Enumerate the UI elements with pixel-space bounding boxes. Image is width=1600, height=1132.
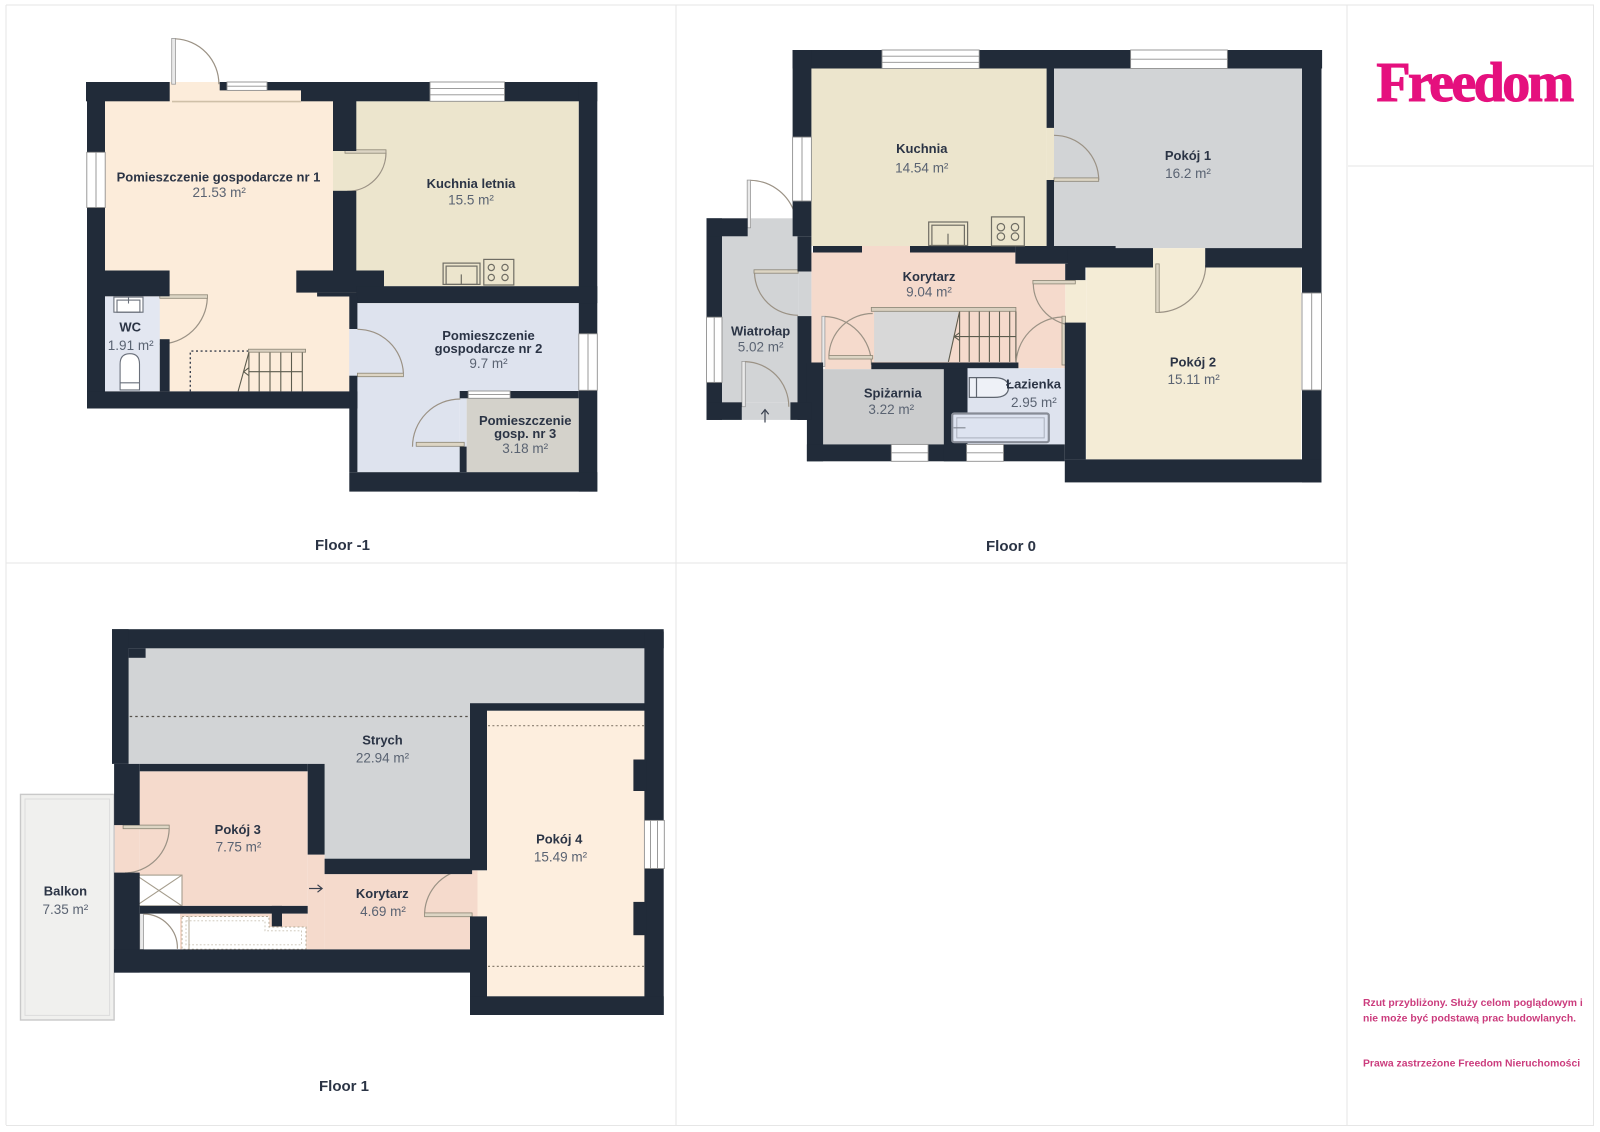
svg-text:Spiżarnia: Spiżarnia [864,386,923,401]
svg-text:3.22 m²: 3.22 m² [868,402,914,417]
svg-text:16.2 m²: 16.2 m² [1165,166,1211,181]
svg-text:Floor 0: Floor 0 [986,538,1036,555]
svg-text:15.5 m²: 15.5 m² [448,192,494,207]
svg-text:Floor -1: Floor -1 [315,537,370,554]
svg-text:7.35 m²: 7.35 m² [43,902,89,917]
svg-text:7.75 m²: 7.75 m² [216,840,262,855]
svg-text:Korytarz: Korytarz [903,269,956,284]
svg-text:22.94 m²: 22.94 m² [356,750,410,765]
svg-text:4.69 m²: 4.69 m² [360,904,406,919]
svg-text:Wiatrołap: Wiatrołap [731,323,790,338]
svg-text:9.04 m²: 9.04 m² [906,284,952,299]
svg-text:9.7 m²: 9.7 m² [469,356,508,371]
svg-text:21.53 m²: 21.53 m² [193,185,247,200]
svg-text:gosp. nr 3: gosp. nr 3 [494,426,556,441]
svg-text:Korytarz: Korytarz [356,886,409,901]
svg-text:5.02 m²: 5.02 m² [738,339,784,354]
svg-text:Kuchnia letnia: Kuchnia letnia [427,176,517,191]
svg-text:1.91 m²: 1.91 m² [108,338,154,353]
svg-text:gospodarcze nr 2: gospodarcze nr 2 [435,341,543,356]
svg-text:Pokój 4: Pokój 4 [536,832,583,847]
svg-text:Kuchnia: Kuchnia [896,141,948,156]
svg-text:Łazienka: Łazienka [1006,377,1062,392]
svg-text:Freedom: Freedom [1376,52,1573,114]
svg-text:WC: WC [119,320,141,335]
svg-text:Balkon: Balkon [44,883,87,898]
svg-text:Pokój 3: Pokój 3 [215,822,261,837]
svg-text:14.54 m²: 14.54 m² [895,160,949,175]
svg-text:nie może być podstawą prac bud: nie może być podstawą prac budowlanych. [1363,1014,1576,1025]
svg-text:Floor 1: Floor 1 [319,1078,369,1095]
svg-text:Pomieszczenie gospodarcze nr 1: Pomieszczenie gospodarcze nr 1 [117,170,321,185]
svg-text:15.49 m²: 15.49 m² [534,850,588,865]
svg-text:Strych: Strych [362,732,403,747]
svg-text:Prawa zastrzeżone Freedom Nier: Prawa zastrzeżone Freedom Nieruchomości [1363,1059,1580,1070]
svg-text:3.18 m²: 3.18 m² [502,441,548,456]
svg-text:Rzut przybliżony. Służy celom: Rzut przybliżony. Służy celom poglądowym… [1363,998,1583,1009]
svg-text:Pokój 2: Pokój 2 [1170,355,1216,370]
svg-text:2.95 m²: 2.95 m² [1011,395,1057,410]
svg-text:15.11 m²: 15.11 m² [1167,372,1220,387]
svg-text:Pokój 1: Pokój 1 [1165,148,1211,163]
